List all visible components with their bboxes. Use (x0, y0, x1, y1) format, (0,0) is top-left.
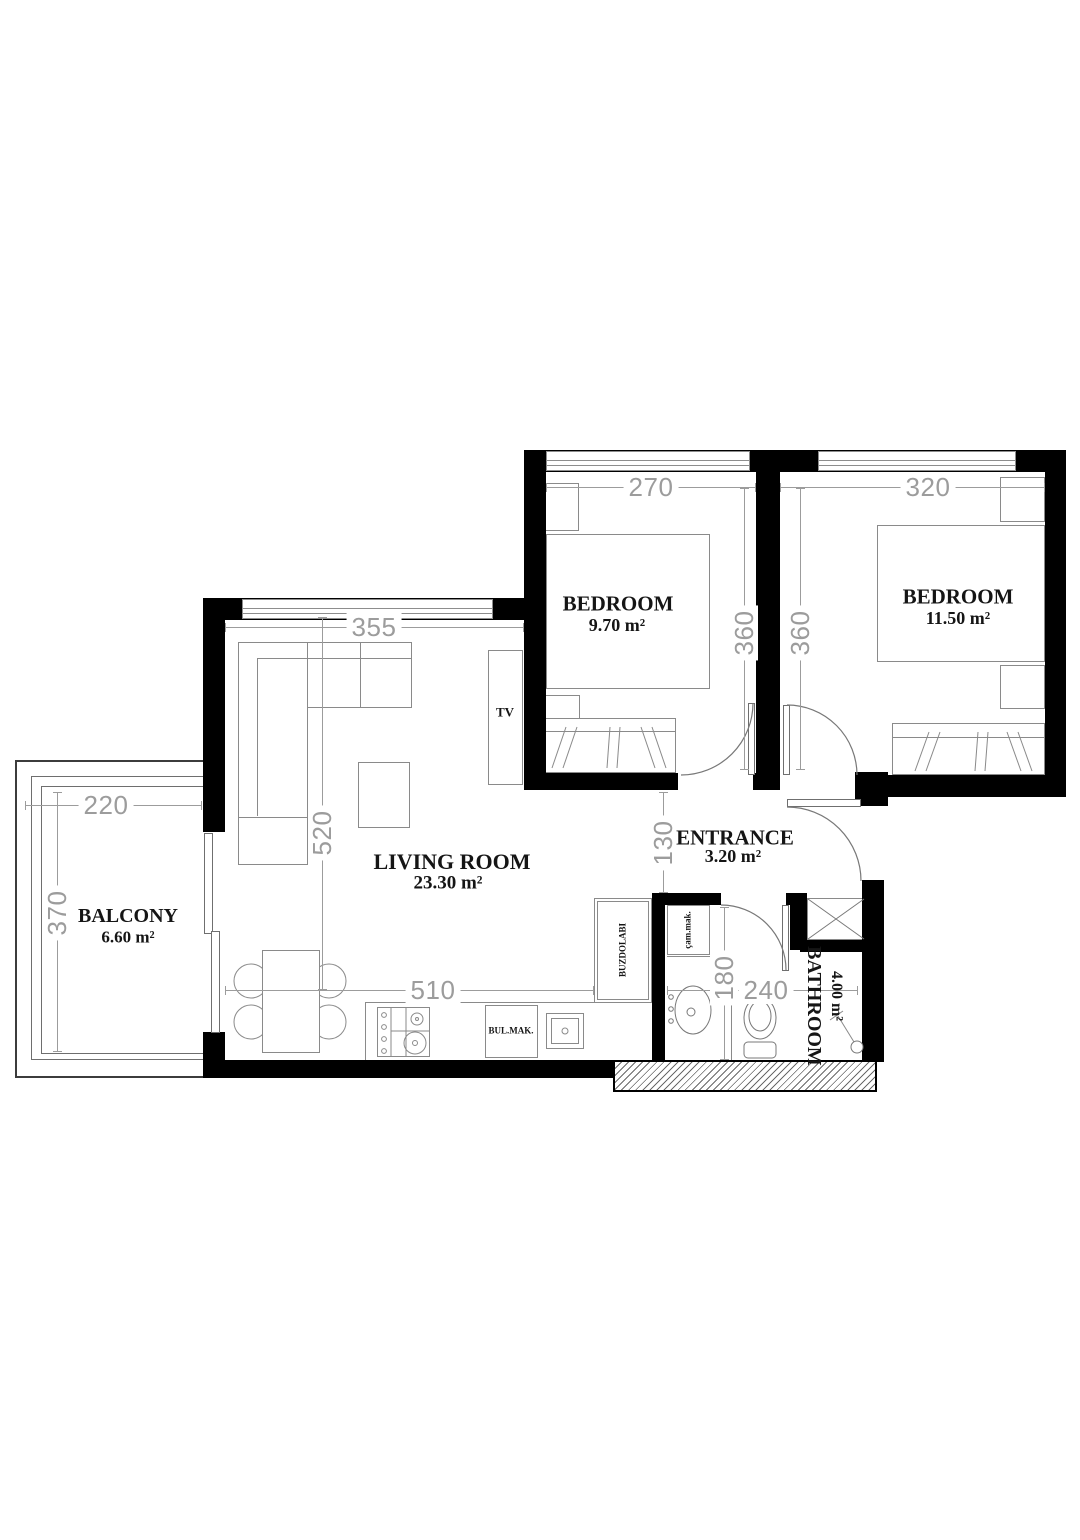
sofa-seat-line (257, 658, 411, 659)
floor-plan: 270 320 355 360 360 520 510 130 180 240 … (0, 0, 1080, 1540)
nightstand (1000, 665, 1045, 709)
room-area-bedroom2: 11.50 m² (926, 609, 990, 627)
window-glazing (547, 460, 749, 466)
dim-label-510: 510 (406, 976, 461, 1004)
wardrobe (892, 723, 1045, 775)
kitchen-sink-basin (551, 1018, 579, 1044)
room-label-bathroom: BATHROOM (804, 946, 824, 1066)
door-arc-bedroom2 (787, 705, 857, 775)
door-leaf-entrance (787, 799, 861, 807)
window-glazing (819, 460, 1015, 466)
bathroom-sink (669, 986, 711, 1034)
wall-divider-foot (753, 773, 780, 790)
wall-living-left (203, 598, 225, 832)
kitchen-counter-edge (365, 1002, 366, 1060)
dim-label-320: 320 (901, 473, 956, 501)
window-bedroom1 (546, 451, 750, 471)
wall-bedroom1-bottom (524, 773, 678, 790)
sofa-left-section (238, 642, 308, 865)
wall-right-lower (862, 880, 884, 1062)
door-arc-bedroom1 (681, 703, 753, 775)
room-area-bedroom1: 9.70 m² (589, 616, 645, 634)
wall-bathroom-left (652, 893, 665, 1062)
dim-label-130: 130 (649, 816, 677, 871)
wall-right-exterior (1045, 450, 1066, 797)
wall-section-hatch (613, 1060, 877, 1092)
sofa-cushion-line (239, 817, 307, 818)
door-leaf-bathroom (782, 905, 789, 971)
balcony-slider-panel (211, 931, 220, 1033)
room-area-bathroom: 4.00 m² (828, 971, 844, 1021)
dim-label-220: 220 (79, 791, 134, 819)
stove (377, 1007, 430, 1057)
fridge-label: BUZDOLABI (619, 923, 628, 977)
dim-line-520 (322, 617, 323, 990)
shaft-box (807, 898, 865, 940)
window-bedroom2 (818, 451, 1016, 471)
dim-label-240: 240 (739, 976, 794, 1004)
wall-bathroom-top (652, 893, 721, 905)
dim-label-270: 270 (624, 473, 679, 501)
wardrobe (536, 718, 676, 773)
room-label-balcony: BALCONY (78, 906, 178, 926)
room-label-bedroom2: BEDROOM (903, 587, 1014, 608)
toilet (744, 997, 776, 1058)
room-area-living: 23.30 m² (413, 874, 482, 893)
room-area-balcony: 6.60 m² (101, 929, 154, 946)
dining-table (262, 950, 320, 1053)
washer-label: çam.mak. (684, 911, 693, 949)
nightstand (1000, 477, 1045, 522)
wall-living-left-lower (203, 1032, 225, 1062)
wardrobe-shelf-line (537, 731, 675, 732)
room-area-entrance: 3.20 m² (705, 847, 761, 865)
dishwasher-label: BUL.MAK. (489, 1027, 534, 1036)
dim-label-520: 520 (308, 806, 336, 861)
room-label-bedroom1: BEDROOM (563, 594, 674, 615)
door-leaf-bedroom1 (748, 703, 755, 775)
dim-label-360a: 360 (730, 606, 758, 661)
dim-label-355: 355 (347, 613, 402, 641)
dim-label-360b: 360 (786, 606, 814, 661)
wall-bottom (203, 1060, 615, 1078)
door-leaf-bedroom2 (783, 705, 790, 775)
sofa-cushion-line (360, 643, 361, 707)
coffee-table (358, 762, 410, 828)
tv-label: TV (496, 706, 514, 719)
door-arc-entrance (787, 807, 861, 881)
balcony-slider-panel (204, 833, 213, 934)
wall-bedroom1-left (524, 450, 546, 790)
wardrobe-shelf-line (893, 737, 1044, 738)
sofa-seat-line (257, 658, 258, 816)
dim-label-180: 180 (710, 951, 738, 1006)
wall-bedroom-divider (756, 450, 780, 790)
room-label-living: LIVING ROOM (373, 851, 530, 873)
dim-label-370: 370 (43, 886, 71, 941)
